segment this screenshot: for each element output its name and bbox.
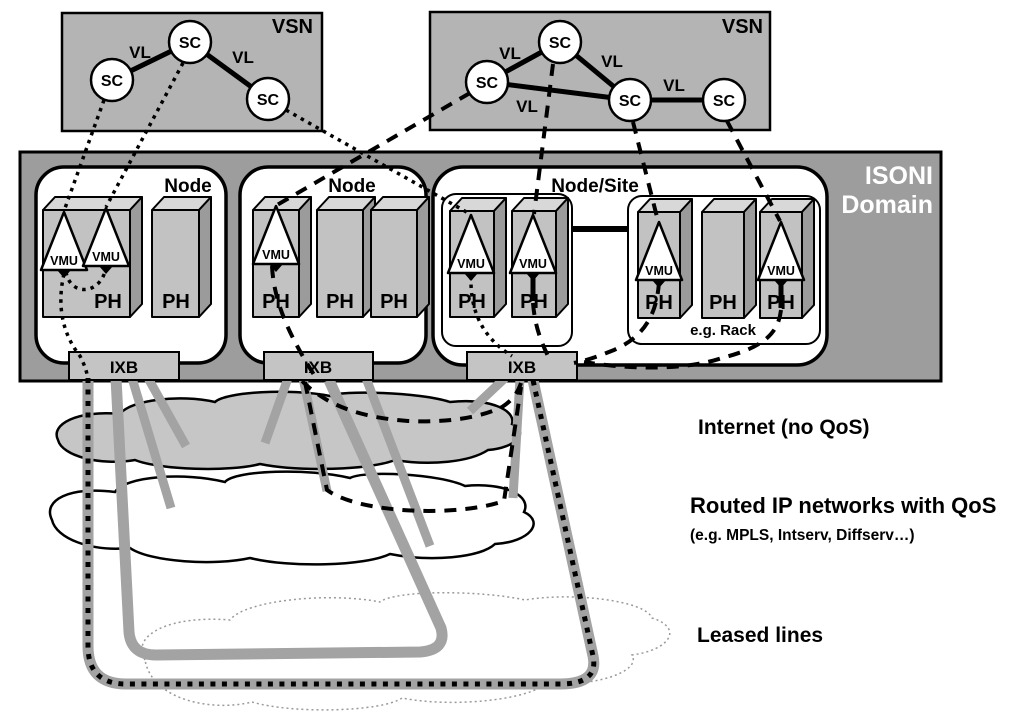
- isoni-title-line2: Domain: [841, 191, 933, 219]
- ixb-label: IXB: [508, 358, 536, 377]
- sc-label: SC: [179, 35, 202, 52]
- node-site-title: Node/Site: [551, 176, 639, 197]
- sc-label: SC: [257, 92, 280, 109]
- ixb-label: IXB: [110, 358, 138, 377]
- vl-label: VL: [601, 52, 623, 71]
- vmu-label: VMU: [767, 264, 795, 278]
- vmu-label: VMU: [519, 257, 547, 271]
- vmu-label: VMU: [262, 248, 290, 262]
- node-1-title: Node: [164, 176, 212, 197]
- sc-label: SC: [713, 93, 736, 110]
- vsn-right-title: VSN: [722, 16, 763, 38]
- node-2-title: Node: [328, 176, 376, 197]
- physical-link: [513, 378, 520, 498]
- sc-label: SC: [101, 73, 124, 90]
- legend-leased: Leased lines: [697, 624, 823, 647]
- legend-routed: Routed IP networks with QoS: [690, 493, 996, 518]
- internet-cloud: [57, 392, 520, 469]
- isoni-architecture-diagram: VL VL SC SC SC VSN VL VL VL VL SC SC SC …: [0, 0, 1024, 725]
- vl-label: VL: [499, 44, 521, 63]
- vl-label: VL: [663, 76, 685, 95]
- legend-internet: Internet (no QoS): [698, 416, 870, 439]
- vsn-left: VL VL SC SC SC VSN: [62, 13, 322, 131]
- sc-label: SC: [619, 93, 642, 110]
- ph-label: PH: [162, 291, 190, 313]
- sc-label: SC: [549, 35, 572, 52]
- vsn-left-title: VSN: [272, 16, 313, 38]
- vl-label: VL: [232, 48, 254, 67]
- vsn-right: VL VL VL VL SC SC SC SC VSN: [430, 12, 770, 130]
- vl-label: VL: [516, 97, 538, 116]
- vl-label: VL: [129, 43, 151, 62]
- isoni-title-line1: ISONI: [865, 162, 933, 190]
- vmu-label: VMU: [92, 250, 120, 264]
- node-1: Node PH PH VMU VMU: [36, 167, 226, 363]
- ph-label: PH: [645, 292, 673, 314]
- sc-label: SC: [476, 75, 499, 92]
- rack-label: e.g. Rack: [690, 322, 757, 339]
- node-2: Node PH PH PH VMU: [240, 167, 429, 363]
- ph-label: PH: [709, 292, 737, 314]
- vmu-label: VMU: [50, 254, 78, 268]
- legend-routed-sub: (e.g. MPLS, Intserv, Diffserv…): [690, 527, 915, 544]
- ph-label: PH: [380, 291, 408, 313]
- ph-label: PH: [94, 291, 122, 313]
- ph-label: PH: [326, 291, 354, 313]
- legend: Internet (no QoS) Routed IP networks wit…: [690, 416, 996, 647]
- vmu-label: VMU: [457, 257, 485, 271]
- ixb-layer: IXB IXB IXB: [69, 352, 577, 380]
- vmu-label: VMU: [645, 264, 673, 278]
